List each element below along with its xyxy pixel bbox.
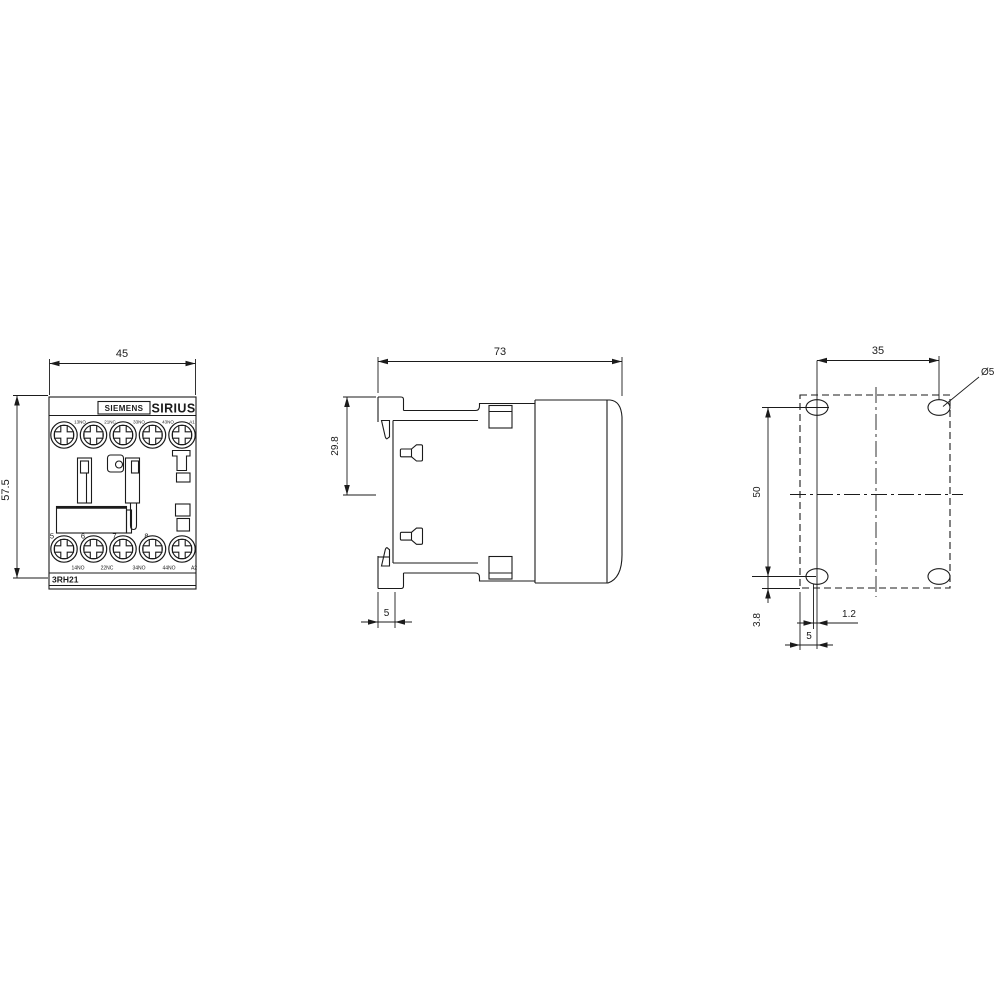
dim-slot: 1.2 xyxy=(797,584,858,629)
terminal-label: A1 xyxy=(189,420,195,425)
keyhole-notch xyxy=(116,461,123,468)
hole-diameter-callout: Ø5 xyxy=(943,367,995,407)
screw-terminal xyxy=(169,422,195,448)
arm-bottom-outline xyxy=(404,573,536,581)
dim-slot-value: 1.2 xyxy=(842,609,856,620)
arm-top-outline xyxy=(404,404,536,411)
terminal-label: 13NO xyxy=(74,420,86,425)
front-face-features xyxy=(57,451,191,534)
terminal-label: 14NO xyxy=(71,566,84,572)
dim-hole-edge-value: 5 xyxy=(806,631,812,642)
plate-top-edge xyxy=(378,397,404,411)
dim-hole-spacing-horizontal-value: 35 xyxy=(872,345,884,357)
dim-foot-value: 5 xyxy=(384,608,390,619)
din-hook-top xyxy=(382,421,390,439)
clip-block-bottom xyxy=(489,557,512,580)
screw-terminal xyxy=(80,536,106,562)
label-field xyxy=(57,507,127,534)
model-label: 3RH21 xyxy=(52,575,79,585)
hole-diameter-value: Ø5 xyxy=(981,367,995,378)
screw-terminal xyxy=(51,422,77,448)
latch-window-1 xyxy=(177,473,191,482)
front-view: SIEMENS SIRIUS 13NO 21NC 33NO 43NO A1 xyxy=(0,348,197,589)
bottom-screw-terminals xyxy=(51,536,195,562)
brand-label: SIEMENS xyxy=(105,404,144,413)
mounting-view: 35 Ø5 50 3.8 1.2 xyxy=(752,345,995,650)
clip-block-top xyxy=(489,406,512,429)
dim-edge-offset: 3.8 xyxy=(752,577,800,627)
terminal-label: 44NO xyxy=(162,566,175,572)
top-screw-terminals xyxy=(51,422,195,448)
t-shaped-latch xyxy=(173,451,191,471)
latch-window-2 xyxy=(176,504,191,516)
terminal-number: 5 xyxy=(50,532,54,541)
dim-height: 57.5 xyxy=(0,396,48,579)
dimension-drawing-page: SIEMENS SIRIUS 13NO 21NC 33NO 43NO A1 xyxy=(0,0,1000,1000)
screw-terminal xyxy=(139,422,165,448)
aux-slot-left-window xyxy=(81,461,89,473)
screw-terminal xyxy=(80,422,106,448)
screw-terminal xyxy=(110,536,136,562)
screw-terminal xyxy=(51,536,77,562)
terminal-label: A2 xyxy=(191,566,197,572)
dim-foot: 5 xyxy=(361,592,412,628)
terminal-label: 21NC xyxy=(104,420,116,425)
terminal-label: 33NO xyxy=(133,420,145,425)
dim-edge-offset-value: 3.8 xyxy=(752,613,763,627)
dim-depth-value: 73 xyxy=(494,346,506,358)
aux-slot-right-window xyxy=(132,461,139,473)
screw-terminal xyxy=(139,536,165,562)
mounting-hole-bottom-right xyxy=(928,569,950,585)
plate-bottom-edge xyxy=(378,573,404,589)
dim-width: 45 xyxy=(50,348,196,395)
dim-height-value: 57.5 xyxy=(0,479,12,500)
latch-window-3 xyxy=(177,519,190,532)
aux-slot-right xyxy=(126,458,140,503)
dim-hole-spacing-vertical-value: 50 xyxy=(752,486,763,498)
technical-drawing: SIEMENS SIRIUS 13NO 21NC 33NO 43NO A1 xyxy=(0,0,1000,1000)
dim-hole-spacing-horizontal: 35 xyxy=(817,345,939,363)
dim-rail-offset-value: 29.8 xyxy=(330,436,341,456)
bottom-terminal-labels: 14NO 22NC 34NO 44NO A2 xyxy=(71,566,197,572)
device-footprint-outline xyxy=(800,395,950,588)
dim-depth: 73 xyxy=(378,346,622,396)
aux-slot-left xyxy=(78,458,92,503)
dim-width-value: 45 xyxy=(116,348,128,360)
leader-line xyxy=(943,377,979,407)
screw-terminal xyxy=(110,422,136,448)
side-view: 73 29.8 5 xyxy=(330,346,622,628)
terminal-label: 22NC xyxy=(101,566,114,572)
terminal-label: 34NO xyxy=(132,566,145,572)
series-label: SIRIUS xyxy=(152,402,196,416)
screw-terminal xyxy=(169,536,195,562)
mounting-hole-top-right xyxy=(928,400,950,416)
terminal-label: 43NO xyxy=(162,420,174,425)
body-outline xyxy=(535,400,622,583)
dim-rail-offset: 29.8 xyxy=(330,397,376,495)
